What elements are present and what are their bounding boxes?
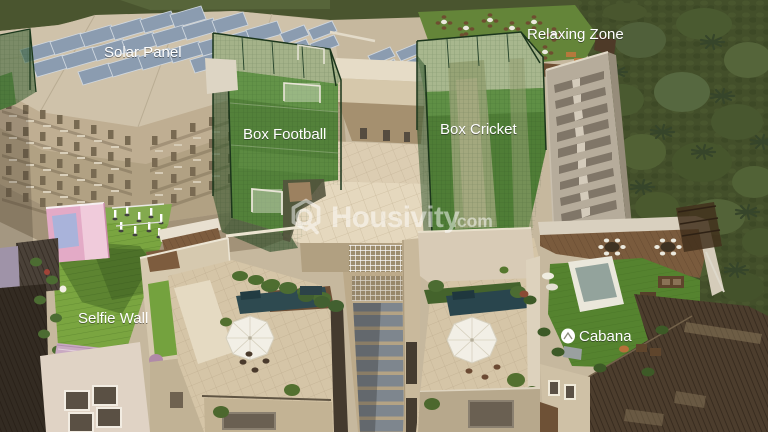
svg-text:.com: .com — [452, 211, 493, 231]
svg-text:Housivity: Housivity — [331, 201, 460, 234]
svg-text:Selfie Wall: Selfie Wall — [78, 310, 148, 327]
svg-text:Box Football: Box Football — [243, 126, 326, 143]
svg-text:Solar Panel: Solar Panel — [104, 44, 182, 61]
svg-text:Relaxing Zone: Relaxing Zone — [527, 26, 624, 43]
svg-text:Cabana: Cabana — [579, 328, 632, 345]
svg-text:Box Cricket: Box Cricket — [440, 121, 518, 138]
